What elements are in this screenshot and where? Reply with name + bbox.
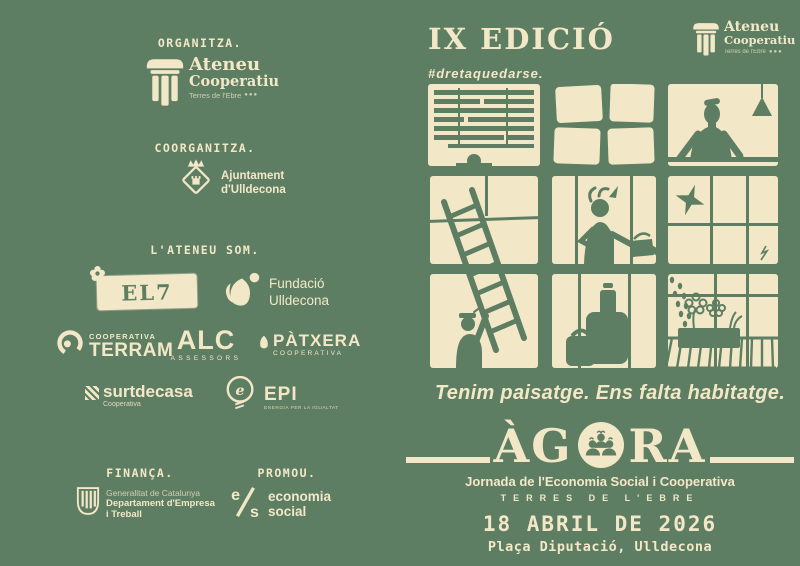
agora-word-post: RA (629, 423, 707, 469)
patxera-name: PÀTXERA (273, 332, 361, 349)
generalitat-line2: Departament d'Empresa (106, 498, 215, 509)
econ-glyph-e: e (231, 486, 240, 504)
striped-square-icon (85, 386, 99, 400)
agora-right-rule (710, 457, 794, 463)
ateneu-name2: Cooperatiu (724, 35, 795, 47)
fundacio-line2: Ulldecona (269, 293, 329, 310)
ateneu-name: Ateneu (724, 20, 795, 34)
el7-name: EL7 (121, 279, 173, 305)
epi-name: EPI (264, 385, 339, 404)
alc-name: ALC (170, 327, 242, 354)
ateneu-cooperatiu-logo: Ateneu Cooperatiu Terres de l'Ebre ●●● (145, 56, 279, 113)
economia-social-logo: e s economia social (228, 484, 331, 525)
promou-label: PROMOU. (207, 466, 367, 480)
agora-o-people-icon (578, 422, 624, 468)
financa-label: FINANÇA. (60, 466, 220, 480)
ateneu-territory: Terres de l'Ebre (724, 49, 766, 55)
agora-logo: ÀG RA Jornada de l'Economia Social i Coo… (406, 422, 794, 503)
terram-name: TERRAM (89, 341, 173, 360)
patxera-logo: PÀTXERA COOPERATIVA (258, 332, 361, 357)
column-icon (692, 20, 720, 63)
ajuntament-ulldecona-logo: Ajuntament d'Ulldecona (178, 158, 286, 209)
ateneu-name: Ateneu (189, 56, 279, 74)
olive-drops-icon (222, 270, 264, 315)
window-balcony-plants (664, 274, 778, 368)
ateneu-cooperatiu-logo-small: Ateneu Cooperatiu Terres de l'Ebre ●●● (692, 20, 795, 63)
fundacio-ulldecona-logo: Fundació Ulldecona (222, 270, 329, 315)
window-woman-watering (552, 176, 665, 264)
ajuntament-line1: Ajuntament (221, 170, 286, 184)
surtdecasa-sub: Cooperativa (103, 401, 193, 408)
epi-sub: ENERGIA PER LA IGUALTAT (264, 406, 339, 411)
ateneu-som-label: L'ATENEU SOM. (60, 243, 350, 257)
windows-illustration (428, 84, 778, 376)
economia-line1: economia (268, 490, 331, 504)
town-crest-icon (178, 158, 214, 209)
window-person-lamp (668, 84, 778, 166)
generalitat-line3: i Treball (106, 509, 215, 520)
alc-assessors-logo: ALC ASSESSORS (170, 327, 242, 363)
generalitat-logo: Generalitat de Catalunya Departament d'E… (76, 486, 215, 521)
ajuntament-line2: d'Ulldecona (221, 184, 286, 198)
column-icon (145, 56, 185, 113)
ateneu-dots: ●●● (769, 49, 783, 55)
leaf-icon (258, 334, 270, 356)
economia-line2: social (268, 505, 331, 519)
event-location: Plaça Diputació, Ulldecona (420, 539, 780, 555)
ateneu-territory: Terres de l'Ebre (189, 92, 241, 100)
econ-glyph-s: s (250, 503, 259, 520)
el7-logo: EL7 (97, 275, 197, 309)
window-star-crack (668, 176, 778, 264)
tagline: Tenim paisatge. Ens falta habitatge. (430, 382, 790, 405)
event-poster: ORGANITZA. Ateneu Cooperatiu Terres de l… (0, 0, 800, 566)
event-date: 18 ABRIL DE 2026 (420, 512, 780, 536)
ateneu-name2: Cooperatiu (189, 75, 279, 90)
patxera-sub: COOPERATIVA (273, 350, 361, 357)
window-four-panes (553, 84, 654, 165)
surtdecasa-name: surtdecasa (103, 383, 193, 400)
alc-sub: ASSESSORS (170, 356, 242, 363)
generalitat-shield-icon (76, 486, 100, 521)
agora-left-rule (406, 457, 490, 463)
hashtag: #dretaquedarse. (428, 66, 543, 81)
ateneu-dots: ●●● (244, 92, 258, 98)
e-slash-s-icon: e s (228, 484, 262, 525)
lightbulb-icon: e (224, 374, 258, 421)
edition-title: IX EDICIÓ (428, 22, 615, 56)
generalitat-line1: Generalitat de Catalunya (106, 488, 215, 498)
cooperativa-terram-logo: COOPERATIVA TERRAM (56, 329, 173, 362)
window-suitcases (552, 274, 656, 368)
agora-word-pre: ÀG (494, 423, 573, 469)
ring-icon (56, 329, 84, 362)
coorganitza-label: COORGANITZA. (60, 141, 350, 155)
epi-logo: e EPI ENERGIA PER LA IGUALTAT (224, 374, 339, 421)
fundacio-line1: Fundació (269, 276, 329, 293)
epi-glyph: e (236, 383, 245, 399)
window-blinds-person (428, 84, 540, 168)
agora-territory: TERRES DE L'EBRE (406, 493, 794, 503)
organitza-label: ORGANITZA. (60, 36, 340, 50)
surtdecasa-logo: surtdecasa Cooperativa (85, 383, 193, 408)
agora-subtitle: Jornada de l'Economia Social i Cooperati… (406, 474, 794, 489)
